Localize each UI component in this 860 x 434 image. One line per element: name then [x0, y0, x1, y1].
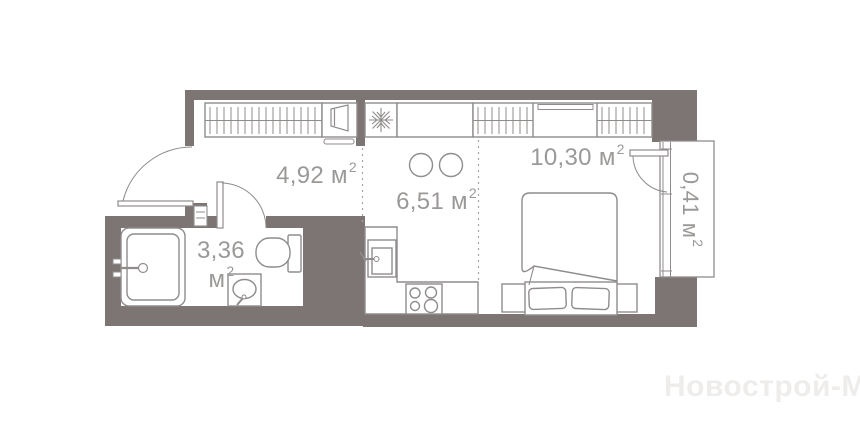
- door-swing-arc-icon: [123, 147, 192, 201]
- bed-icon: [522, 193, 617, 281]
- living-wardrobe: [473, 103, 652, 137]
- bathroom-area-unit: м: [209, 266, 226, 293]
- hall-closet: [205, 103, 322, 137]
- nightstand-right: [616, 284, 637, 312]
- bathroom-area-label: 3,36 м2: [197, 236, 245, 294]
- entry-panel: [194, 206, 207, 226]
- shoe-cabinet-icon: [331, 105, 348, 131]
- kitchen-upper-counter: [397, 103, 473, 137]
- living-area-label: 10,30м2: [530, 144, 623, 172]
- balcony-area-sup: 2: [690, 239, 706, 247]
- nightstand-left: [502, 284, 526, 312]
- wall-left-stub: [185, 90, 194, 146]
- wall-bottom-right-block: [655, 277, 697, 327]
- kitchen-area-value: 6,51: [396, 188, 444, 215]
- snowflake-fridge-icon: [369, 108, 393, 132]
- bathroom-door: [217, 182, 266, 228]
- floorplan-svg: [0, 0, 860, 434]
- kitchen-area-sup: 2: [469, 185, 477, 201]
- pillow-icon: [529, 287, 567, 309]
- entrance-door: [118, 147, 207, 226]
- wall-bottom: [363, 314, 697, 327]
- hallway-area-label: 4,92м2: [276, 162, 356, 190]
- wall-top-right-block: [652, 90, 697, 142]
- pillow-icon: [572, 287, 610, 309]
- toilet-icon: [256, 235, 301, 272]
- wardrobe-shelf: [538, 105, 593, 110]
- floor-plan: 4,92м2 6,51м2 10,30м2 3,36 м2 0,41м2 Нов…: [0, 0, 860, 434]
- stool-icon: [440, 154, 463, 177]
- bathtub-icon: [113, 228, 185, 306]
- balcony-area-unit: м: [678, 223, 703, 238]
- living-area-sup: 2: [617, 141, 625, 157]
- balcony-area-value: 0,41: [678, 172, 703, 216]
- shoe-cabinet: [322, 103, 357, 144]
- living-area-unit: м: [599, 144, 616, 171]
- bathroom-area-value: 3,36: [197, 236, 245, 265]
- developer-watermark: Новострой-М: [664, 370, 860, 404]
- bathroom-area-sup: 2: [226, 263, 234, 279]
- bed: [502, 193, 637, 315]
- hallway-area-unit: м: [331, 162, 348, 189]
- hallway-area-sup: 2: [349, 159, 357, 175]
- wall-top: [185, 90, 697, 100]
- wall-shaft: [303, 216, 365, 326]
- living-area-value: 10,30: [530, 144, 592, 171]
- balcony-area-label: 0,41м2: [677, 172, 703, 247]
- hallway-area-value: 4,92: [276, 162, 324, 189]
- kitchen-counter: [360, 227, 478, 314]
- stove-burners-icon: [406, 284, 442, 314]
- fridge: [365, 103, 397, 137]
- stool-icon: [410, 154, 433, 177]
- kitchen-area-label: 6,51м2: [396, 188, 476, 216]
- door-swing-arc-icon: [222, 183, 266, 228]
- shoe-tray: [324, 139, 354, 144]
- kitchen-area-unit: м: [451, 188, 468, 215]
- stools: [410, 154, 463, 177]
